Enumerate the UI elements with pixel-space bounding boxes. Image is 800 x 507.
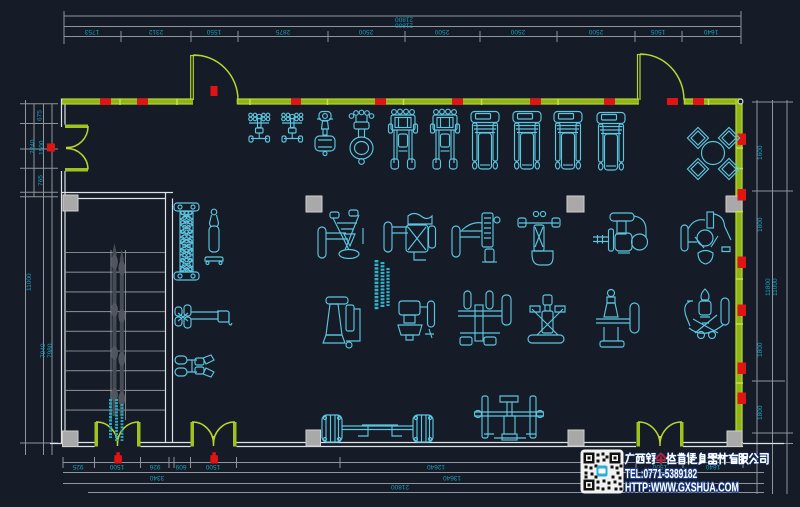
svg-text:2500: 2500 — [434, 28, 449, 35]
svg-text:13640: 13640 — [443, 474, 461, 481]
svg-text:21800: 21800 — [395, 16, 413, 23]
svg-text:1640: 1640 — [703, 28, 718, 35]
svg-text:675: 675 — [37, 110, 44, 121]
svg-text:HTTP:WWW.GXSHUA.COM: HTTP:WWW.GXSHUA.COM — [625, 481, 739, 495]
svg-text:12640: 12640 — [427, 463, 445, 470]
svg-text:2500: 2500 — [510, 28, 525, 35]
svg-text:1800: 1800 — [757, 405, 764, 420]
svg-text:765: 765 — [38, 175, 45, 186]
svg-text:609: 609 — [175, 463, 186, 470]
svg-text:11000: 11000 — [26, 273, 33, 291]
svg-text:926: 926 — [149, 463, 160, 470]
svg-text:1753: 1753 — [84, 28, 99, 35]
svg-text:1600: 1600 — [757, 145, 764, 160]
svg-text:11800: 11800 — [765, 278, 772, 296]
svg-text:TEL:0771-5389182: TEL:0771-5389182 — [625, 467, 697, 481]
svg-text:1800: 1800 — [757, 342, 764, 357]
svg-text:1500: 1500 — [109, 463, 124, 470]
svg-text:11000: 11000 — [772, 278, 779, 296]
svg-text:2312: 2312 — [148, 28, 163, 35]
svg-text:2240: 2240 — [30, 139, 37, 154]
svg-text:21800: 21800 — [391, 483, 409, 490]
svg-text:925: 925 — [72, 463, 83, 470]
svg-text:1505: 1505 — [650, 28, 665, 35]
svg-text:7980: 7980 — [47, 343, 54, 358]
svg-text:1500: 1500 — [205, 463, 220, 470]
svg-text:7940: 7940 — [40, 343, 47, 358]
svg-text:2875: 2875 — [275, 28, 290, 35]
svg-text:21800: 21800 — [395, 22, 413, 29]
svg-text:1500: 1500 — [39, 140, 46, 155]
svg-text:3340: 3340 — [149, 474, 164, 481]
svg-text:1550: 1550 — [206, 28, 221, 35]
svg-text:2500: 2500 — [358, 28, 373, 35]
svg-text:1800: 1800 — [757, 217, 764, 232]
svg-text:2500: 2500 — [588, 28, 603, 35]
